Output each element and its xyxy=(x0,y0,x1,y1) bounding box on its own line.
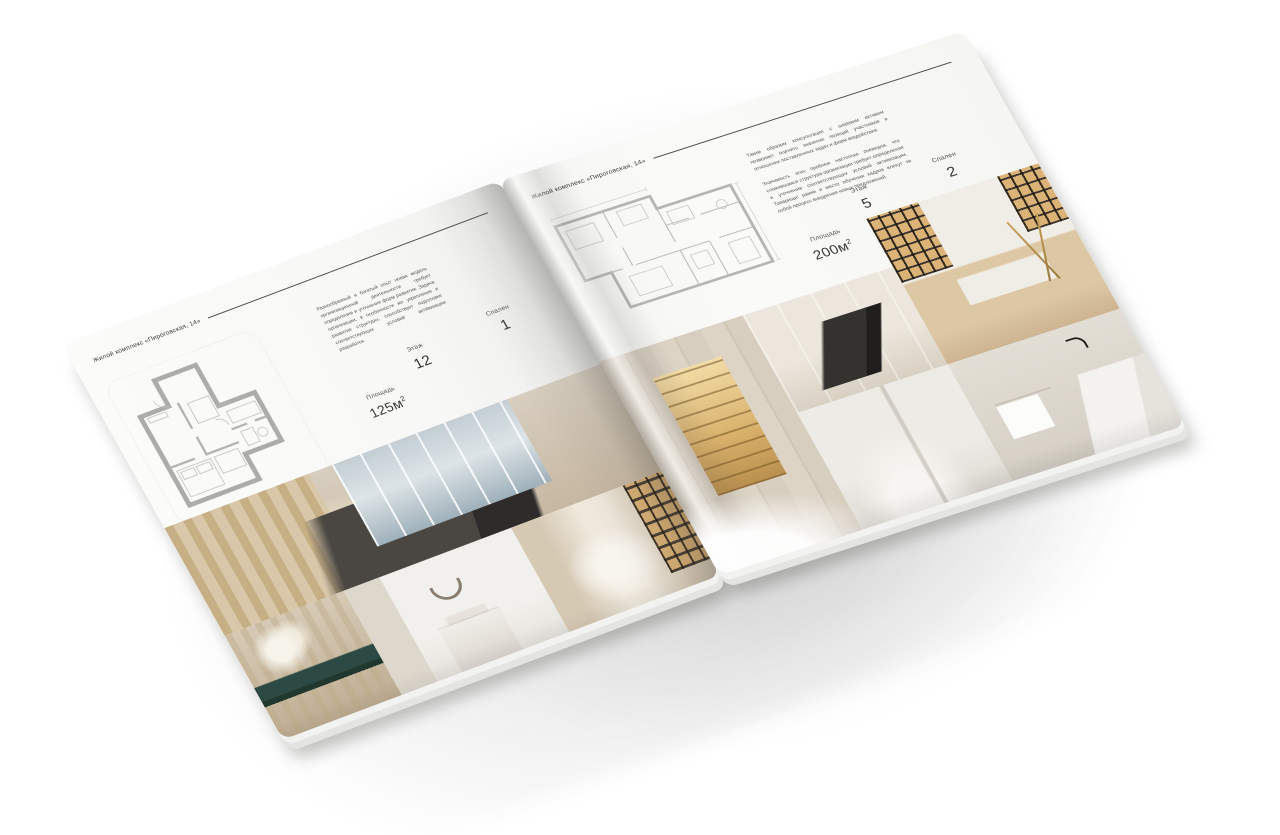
right-area-stat: Площадь 200м2 xyxy=(793,223,868,266)
left-area-stat: Площадь 125м2 xyxy=(350,380,421,425)
gold-lamp-leg xyxy=(1036,213,1052,281)
left-bedrooms-stat: Спален 1 xyxy=(470,298,536,342)
gold-lamp-leg xyxy=(1006,222,1061,279)
towel-rail xyxy=(994,387,1050,406)
magazine-mockup-scene: Жилой комплекс «Пироговская, 14» Разнооб… xyxy=(0,0,1280,835)
left-floor-stat: Этаж 12 xyxy=(389,336,451,379)
faucet-icon xyxy=(1065,335,1089,353)
wreath-decor xyxy=(423,566,468,604)
right-bedrooms-stat: Спален 2 xyxy=(915,146,984,188)
